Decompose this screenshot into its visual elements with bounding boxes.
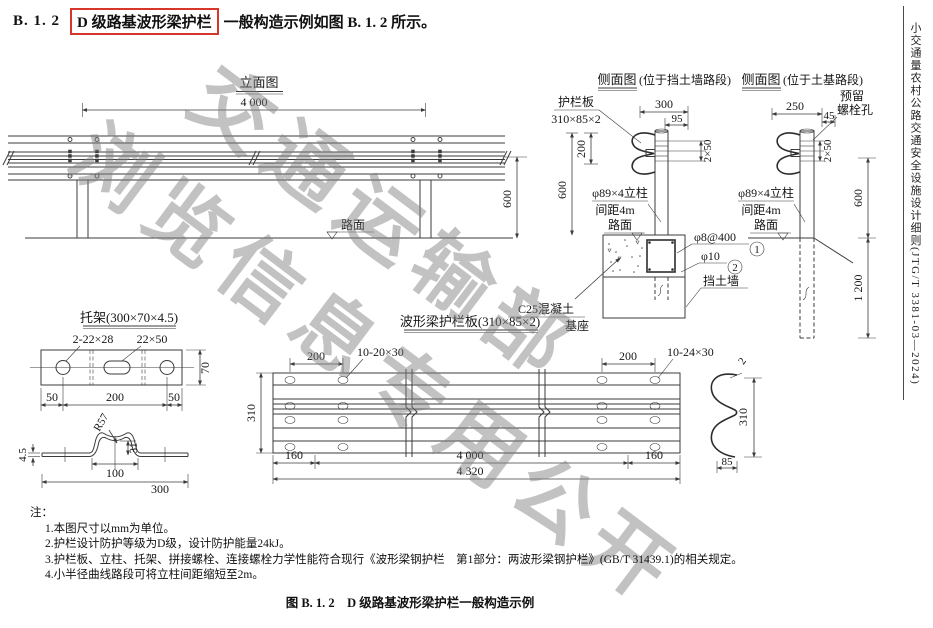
dim-label: 1 200 bbox=[851, 275, 865, 302]
dim-label: 31 bbox=[128, 443, 140, 454]
figure-caption: 图 B. 1. 2 D 级路基波形梁护栏一般构造示例 bbox=[0, 592, 820, 611]
post-spacing-label: 间距4m bbox=[595, 203, 635, 217]
wave-profile bbox=[711, 374, 737, 457]
elevation-view: 立面图 4 000 bbox=[3, 75, 527, 239]
wave-beam-profile bbox=[632, 133, 655, 174]
note-item: 1.本图尺寸以mm为单位。 bbox=[45, 522, 743, 538]
holes-label: 10-20×30 bbox=[357, 345, 404, 359]
dim-label: 200 bbox=[619, 349, 637, 363]
view-title: 托架(300×70×4.5) bbox=[80, 310, 178, 325]
note-item: 3.护栏板、立柱、托架、拼接螺栓、连接螺栓力学性能符合现行《波形梁钢护栏 第1部… bbox=[45, 553, 743, 569]
dim-label: 600 bbox=[500, 190, 514, 208]
sidebar-divider bbox=[903, 6, 904, 400]
plate-breaks bbox=[406, 369, 550, 457]
dim-label: 200 bbox=[106, 390, 124, 404]
bracket-section: R57 4.5 31 100 300 bbox=[17, 411, 188, 496]
view-title: 波形梁护栏板(310×85×2) bbox=[400, 314, 540, 329]
dim-label: 2 bbox=[736, 356, 749, 367]
dim-label: 2×50 bbox=[822, 139, 834, 162]
holes-label: 2-22×28 bbox=[73, 332, 114, 346]
post bbox=[655, 131, 668, 235]
wall-label: 挡土墙 bbox=[703, 274, 739, 288]
dim-label: 250 bbox=[786, 99, 804, 113]
dim-label: 2×50 bbox=[702, 139, 714, 162]
splice-bolts bbox=[68, 138, 442, 179]
post-label: φ89×4立柱 bbox=[592, 185, 648, 200]
post bbox=[77, 180, 88, 238]
rebar1-ref-num: 1 bbox=[754, 244, 760, 256]
beam-cross-section: 2 310 85 bbox=[711, 356, 762, 473]
bracket-plan: 托架(300×70×4.5) 2-22×28 22×50 50 200 50 bbox=[30, 310, 212, 411]
dim-label: 45 bbox=[824, 110, 836, 122]
dim-label: 100 bbox=[106, 466, 124, 480]
dim-label: 50 bbox=[168, 390, 180, 404]
rebar1-label: φ8@400 bbox=[694, 230, 736, 244]
bolt-hole-label: 预留 bbox=[840, 89, 864, 103]
road-surface-label: 路面 bbox=[341, 217, 365, 232]
side-view-soil: 侧面图 (位于土基路段) 预留 螺栓孔 250 45 2×50 bbox=[738, 72, 876, 338]
section-heading: B. 1. 2 D 级路基波形梁护栏 一般构造示例如图 B. 1. 2 所示。 bbox=[13, 8, 436, 35]
dim-label: 95 bbox=[672, 113, 684, 125]
notes-block: 注： 1.本图尺寸以mm为单位。 2.护栏设计防护等级为D级，设计防护能量24k… bbox=[30, 506, 743, 584]
post bbox=[800, 131, 814, 238]
view-title-suffix: (位于土基路段) bbox=[783, 72, 863, 87]
dim-label: 85 bbox=[722, 456, 734, 468]
dim-label: 200 bbox=[574, 140, 588, 158]
dim-label: 200 bbox=[307, 349, 325, 363]
view-title: 侧面图 bbox=[741, 72, 780, 87]
base-label2: 基座 bbox=[565, 318, 589, 333]
pipe-break bbox=[658, 285, 663, 296]
road-surface-label: 路面 bbox=[754, 217, 778, 232]
highlighted-term: D 级路基波形梁护栏 bbox=[70, 8, 219, 35]
dim-label: 300 bbox=[151, 482, 169, 496]
road-surface-label: 路面 bbox=[608, 217, 632, 232]
post-label: φ89×4立柱 bbox=[738, 185, 794, 200]
post-spacing-label: 间距4m bbox=[741, 203, 781, 217]
view-title: 立面图 bbox=[239, 75, 278, 90]
bolt-holes bbox=[655, 141, 706, 161]
radius-label: R57 bbox=[92, 411, 112, 433]
post bbox=[420, 180, 431, 238]
dim-label: 160 bbox=[285, 448, 303, 462]
rebar2-ref-num: 2 bbox=[732, 262, 738, 274]
plate-size-label: 310×85×2 bbox=[551, 112, 601, 126]
wave-beam-profile bbox=[777, 133, 800, 174]
rebar-cage bbox=[647, 240, 675, 272]
dim-label: 4 320 bbox=[457, 464, 484, 478]
dim-label: 310 bbox=[244, 404, 258, 422]
dim-label: 600 bbox=[555, 181, 569, 199]
pipe-break bbox=[803, 287, 809, 300]
holes-label: 10-24×30 bbox=[667, 345, 714, 359]
plate-profile-lines bbox=[273, 385, 680, 441]
heading-rest: 一般构造示例如图 B. 1. 2 所示。 bbox=[224, 11, 437, 32]
bolt-hole-label2: 螺栓孔 bbox=[837, 102, 873, 117]
view-title-suffix: (位于挡土墙路段) bbox=[639, 72, 731, 87]
sidebar-standard-title: 小交通量农村公路交通安全设施设计细则(JTG/T 3381-03—2024) bbox=[907, 22, 923, 394]
plate-detail: 波形梁护栏板(310×85×2) bbox=[244, 314, 714, 484]
side-view-wall: 侧面图 (位于挡土墙路段) 护栏板 310×85×2 300 95 bbox=[508, 72, 764, 333]
document-page: B. 1. 2 D 级路基波形梁护栏 一般构造示例如图 B. 1. 2 所示。 … bbox=[0, 0, 933, 628]
concrete-stipple bbox=[608, 239, 643, 273]
dim-label: 70 bbox=[198, 362, 212, 374]
dim-label: 160 bbox=[645, 448, 663, 462]
dim-label: 4.5 bbox=[17, 448, 29, 462]
dim-label: 4 000 bbox=[241, 95, 268, 109]
dim-label: 50 bbox=[46, 390, 58, 404]
section-number: B. 1. 2 bbox=[13, 13, 60, 30]
view-title: 侧面图 bbox=[597, 72, 636, 87]
plate-label: 护栏板 bbox=[558, 94, 594, 109]
rebar2-label: φ10 bbox=[701, 249, 720, 263]
notes-label: 注： bbox=[30, 506, 743, 522]
slot-label: 22×50 bbox=[137, 332, 168, 346]
note-item: 2.护栏设计防护等级为D级，设计防护能量24kJ。 bbox=[45, 537, 743, 553]
dim-label: 310 bbox=[736, 408, 750, 426]
dim-label: 600 bbox=[851, 189, 865, 207]
note-item: 4.小半径曲线路段可将立柱间距缩短至2m。 bbox=[45, 568, 743, 584]
dim-label: 4 000 bbox=[457, 448, 484, 462]
dim-label: 300 bbox=[655, 97, 673, 111]
